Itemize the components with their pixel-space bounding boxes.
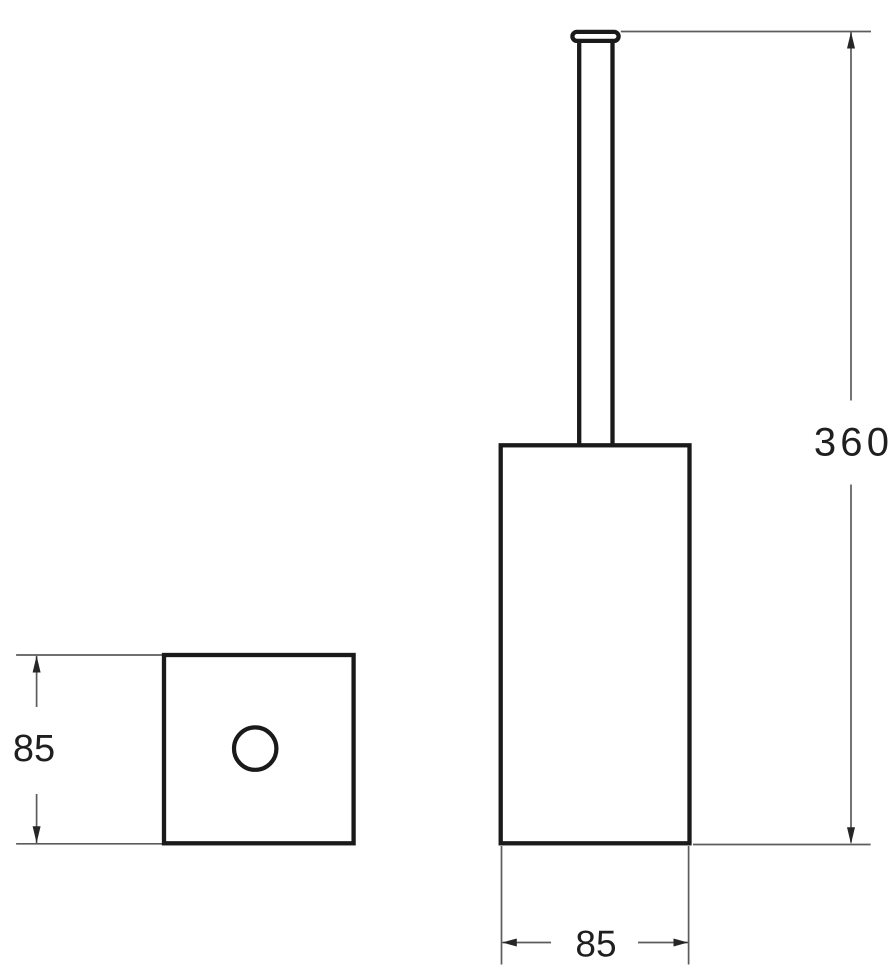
svg-text:85: 85 [13,728,55,770]
svg-text:360: 360 [814,421,893,465]
svg-text:85: 85 [575,924,616,965]
